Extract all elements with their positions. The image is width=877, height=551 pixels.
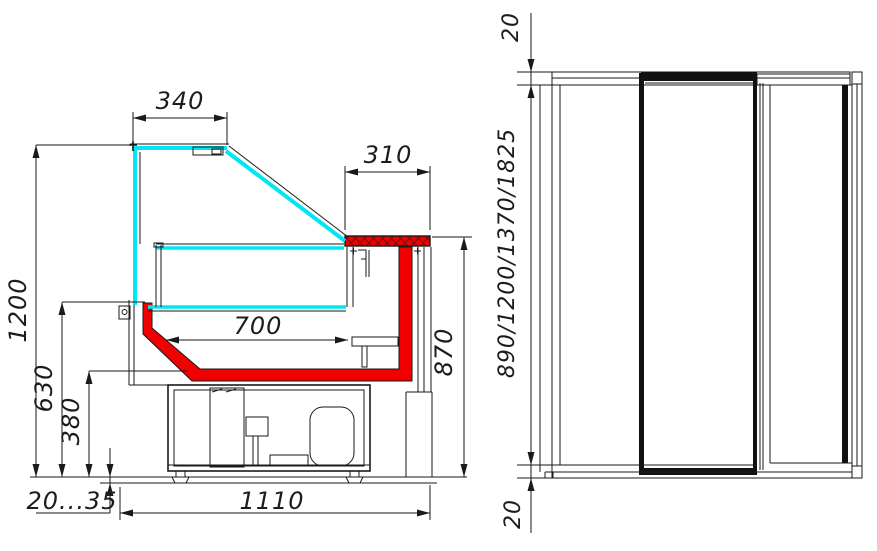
diagonal-glass: [226, 151, 345, 241]
front-view: [540, 72, 862, 478]
center-mullion: [639, 73, 644, 475]
machine-compartment-inner: [174, 390, 364, 466]
worktop-hatched: [345, 236, 430, 246]
left-foot: [172, 477, 189, 483]
electric-box: [246, 417, 268, 436]
machine-compartment: [168, 385, 370, 471]
dim-right-line: [517, 13, 556, 533]
dim-foot-label: 20...35: [27, 487, 118, 515]
drain-tray: [270, 455, 308, 466]
dim-870-label: 870: [430, 328, 458, 377]
well-rear-wall: [347, 247, 353, 307]
right-edge-lines: [852, 84, 862, 466]
dim-380-lines: [89, 371, 188, 477]
bottom-corner-block: [852, 466, 862, 478]
technical-drawing-page: 340 310 1200 630 380 20...35 700: [0, 0, 877, 551]
dim-340-lines: [133, 112, 227, 145]
top-right-cap: [757, 74, 850, 85]
dim-380-label: 380: [57, 397, 85, 446]
dim-630-lines: [62, 302, 145, 477]
right-frame-post: [842, 85, 848, 463]
dim-340-label: 340: [156, 87, 205, 115]
door-right-edge: [753, 79, 757, 470]
compressor: [310, 407, 354, 466]
dim-630-label: 630: [30, 364, 58, 413]
body-left-edges: [540, 77, 560, 478]
front-view-dimensions: 20 890/1200/1370/1825 20: [495, 12, 556, 533]
dim-1110-label: 1110: [239, 487, 304, 515]
dim-top20-label: 20: [499, 12, 524, 42]
diagonal-glass-outline: [229, 146, 348, 237]
dim-310-lines: [345, 166, 430, 230]
condenser-unit: [210, 388, 244, 467]
front-bracket-bolt: [122, 310, 127, 315]
rear-shelf-strut: [362, 346, 367, 367]
technical-drawing-canvas: 340 310 1200 630 380 20...35 700: [0, 0, 877, 551]
rear-shelf-bracket: [352, 337, 398, 346]
dim-bottom20-label: 20: [501, 499, 526, 529]
dim-310-label: 310: [364, 141, 413, 169]
rear-hook-bracket: [358, 250, 369, 277]
shelf-post: [156, 245, 161, 307]
door-frame-lines: [760, 83, 770, 470]
rear-base-step: [406, 392, 432, 477]
body-bottom-lines: [540, 463, 852, 465]
top-door-rail: [641, 72, 757, 81]
right-foot-stem: [350, 471, 359, 477]
dim-lengths-label: 890/1200/1370/1825: [495, 128, 520, 378]
top-corner-block: [852, 72, 862, 84]
electric-box-strut: [253, 436, 258, 466]
left-foot-stem: [176, 471, 185, 477]
dim-700-label: 700: [234, 312, 283, 340]
front-bracket: [119, 306, 130, 319]
dim-1200-label: 1200: [4, 277, 32, 342]
right-foot: [346, 477, 363, 483]
